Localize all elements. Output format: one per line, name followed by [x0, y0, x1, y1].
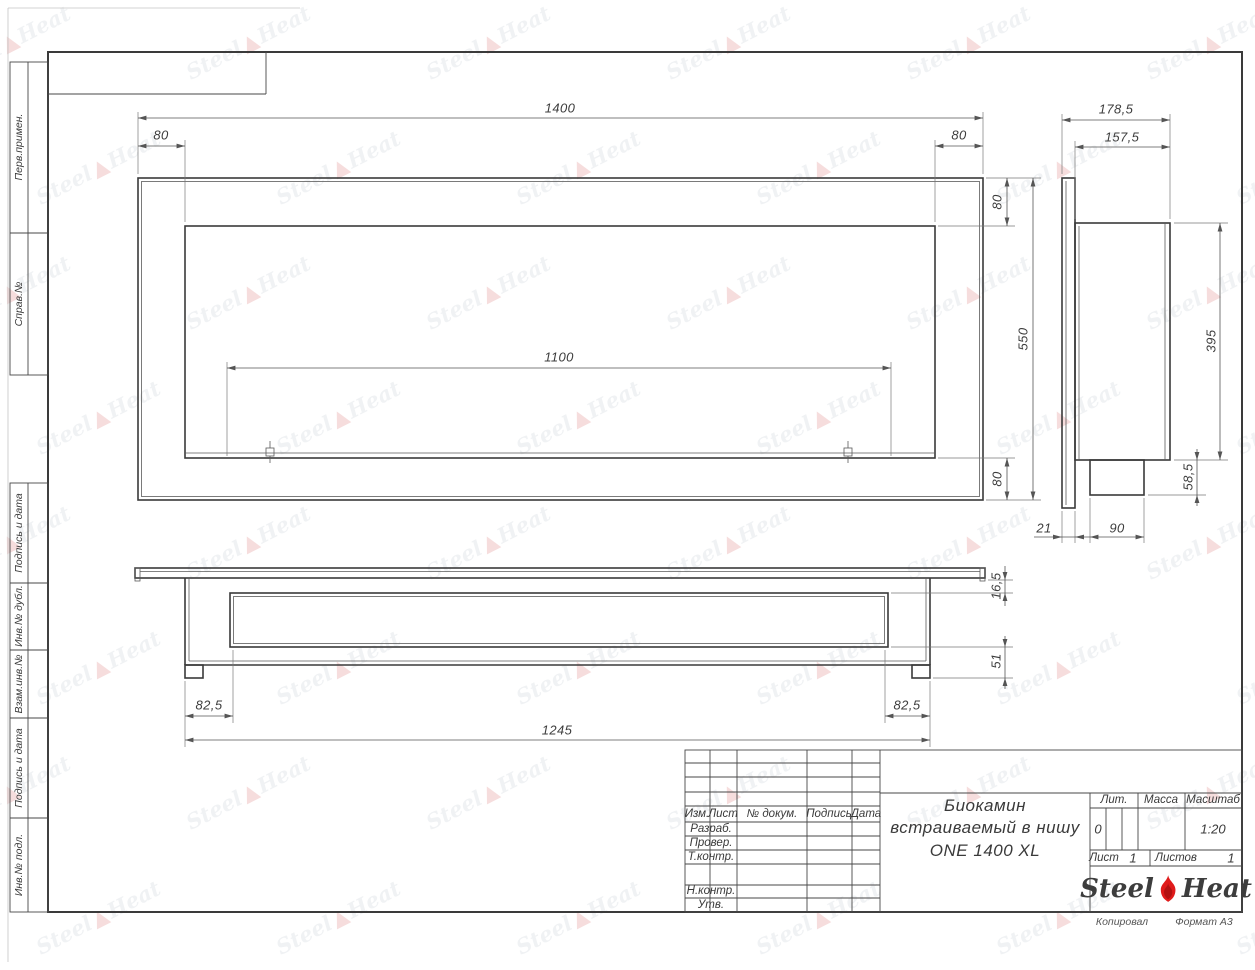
tb-row-prover: Провер. [690, 837, 733, 849]
stamp-perv-primen: Перв.примен. [13, 114, 25, 181]
dim-side-tray-depth: 90 [1109, 521, 1124, 536]
stamp-inv-dubl: Инв.№ дубл. [13, 585, 25, 647]
dim-front-opening-width: 1100 [544, 350, 574, 365]
tb-row-utv: Утв. [698, 899, 724, 911]
dim-side-body-height: 395 [1204, 330, 1219, 353]
dim-front-right-bottom: 80 [990, 471, 1005, 486]
paper-edge [8, 8, 300, 962]
tb-col-list: Лист [708, 808, 738, 820]
front-view [138, 178, 983, 500]
tb-mass-label: Масса [1144, 794, 1178, 806]
tb-row-tkontr: Т.контр. [688, 851, 734, 863]
dim-side-total-depth: 178,5 [1099, 102, 1134, 117]
front-view-dimensions [138, 112, 1041, 500]
drawing-sheet: Steel▲HeatSteel▲HeatSteel▲HeatSteel▲Heat… [0, 0, 1255, 970]
bottom-view [135, 568, 985, 678]
footer-copied: Копировал [1096, 916, 1148, 928]
side-view [1062, 178, 1170, 508]
brand-heat: Heat [1182, 874, 1252, 904]
dim-front-top-left: 80 [153, 128, 168, 143]
tb-sheets-total-label: Листов [1155, 852, 1197, 864]
brand-steel: Steel [1080, 874, 1154, 904]
dim-bottom-flange-offset: 16,5 [989, 573, 1004, 600]
tb-lit-value: 0 [1094, 822, 1101, 837]
sheet-frame [48, 52, 1242, 912]
dim-side-tray-height: 58,5 [1181, 464, 1196, 491]
dim-side-flange-thickness: 21 [1036, 521, 1051, 536]
tb-lit-label: Лит. [1101, 794, 1128, 806]
tb-scale-value: 1:20 [1200, 822, 1225, 837]
brand-logo: Steel Heat [1080, 874, 1252, 904]
tb-row-nkontr: Н.контр. [687, 885, 736, 897]
stamp-inv-podl: Инв.№ подл. [13, 834, 25, 896]
tb-row-razrab: Разраб. [690, 823, 732, 835]
tb-col-data: Дата [851, 808, 881, 820]
dim-bottom-tray-drop: 51 [989, 653, 1004, 668]
tb-col-podpis: Подпись [806, 808, 852, 820]
stamp-podpis-data-2: Подпись и дата [13, 728, 25, 807]
doc-title-line1: Биокамин [944, 796, 1026, 816]
dim-bottom-left-inset: 82,5 [196, 698, 223, 713]
tb-sheet-label: Лист [1089, 852, 1119, 864]
dim-side-body-depth: 157,5 [1105, 130, 1140, 145]
tb-col-ndocum: № докум. [747, 808, 798, 820]
stamp-vzam-inv: Взам.инв.№ [13, 654, 25, 713]
stamp-podpis-data-1: Подпись и дата [13, 493, 25, 572]
dim-bottom-body-width: 1245 [542, 723, 573, 738]
dim-front-top-right: 80 [951, 128, 966, 143]
footer-format: Формат А3 [1175, 916, 1232, 928]
tb-sheets-total-value: 1 [1227, 851, 1234, 866]
tb-sheet-value: 1 [1129, 851, 1136, 866]
dim-bottom-right-inset: 82,5 [894, 698, 921, 713]
tb-scale-label: Масштаб [1186, 794, 1240, 806]
tb-col-izm: Изм. [685, 808, 710, 820]
dim-front-total-width: 1400 [545, 101, 576, 116]
dim-front-right-top: 80 [990, 194, 1005, 209]
doc-title-line2: встраиваемый в нишу [890, 818, 1079, 838]
dim-front-total-height: 550 [1016, 328, 1031, 351]
stamp-sprav-no: Справ.№ [13, 282, 25, 327]
flame-icon [1157, 874, 1179, 904]
doc-title-line3: ONE 1400 XL [930, 841, 1040, 861]
